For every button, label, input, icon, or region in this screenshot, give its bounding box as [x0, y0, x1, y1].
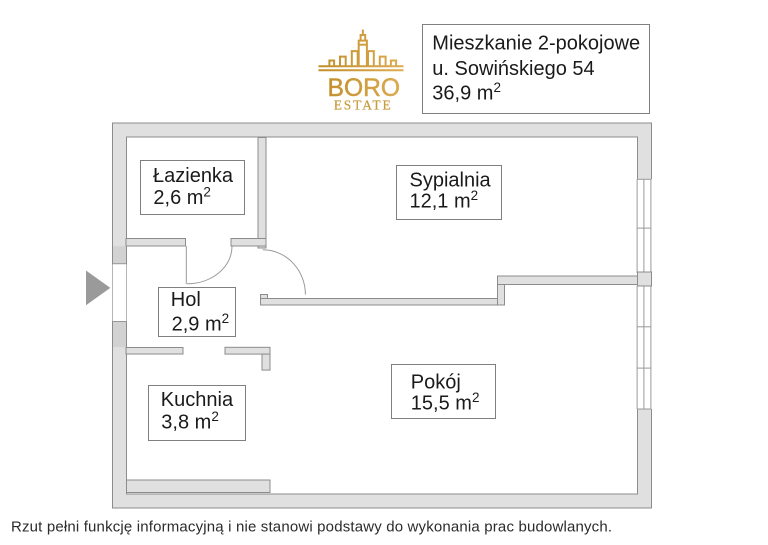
svg-text:3,8 m2: 3,8 m2	[161, 409, 219, 434]
svg-text:Pokój: Pokój	[411, 372, 461, 394]
svg-text:u. Sowińskiego 54: u. Sowińskiego 54	[432, 58, 594, 80]
svg-text:2,6 m2: 2,6 m2	[153, 184, 211, 209]
svg-text:Sypialnia: Sypialnia	[410, 169, 492, 191]
svg-text:12,1 m2: 12,1 m2	[410, 188, 479, 213]
svg-text:Mieszkanie 2-pokojowe: Mieszkanie 2-pokojowe	[432, 32, 640, 54]
svg-text:36,9 m2: 36,9 m2	[432, 80, 501, 105]
svg-text:Hol: Hol	[171, 289, 201, 311]
svg-text:15,5 m2: 15,5 m2	[411, 390, 480, 415]
svg-text:Kuchnia: Kuchnia	[161, 389, 234, 411]
svg-text:Łazienka: Łazienka	[153, 165, 234, 187]
svg-text:2,9 m2: 2,9 m2	[172, 311, 230, 336]
svg-text:Rzut pełni funkcję informacyjn: Rzut pełni funkcję informacyjną i nie st…	[11, 519, 612, 536]
